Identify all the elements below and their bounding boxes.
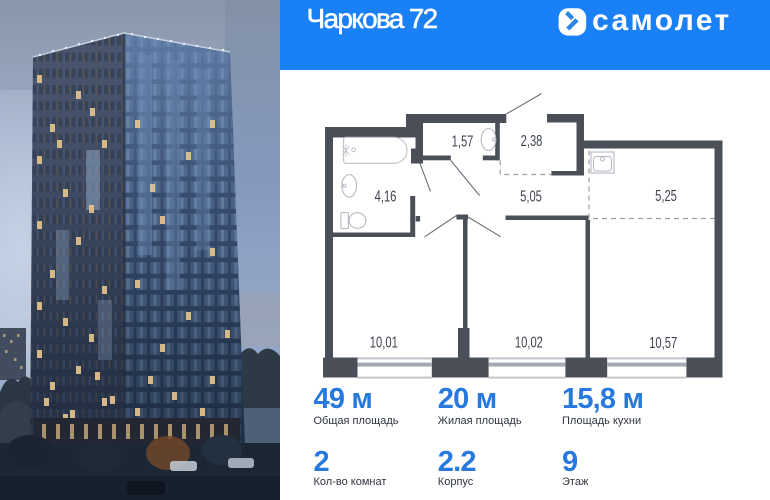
svg-text:2,38: 2,38: [521, 131, 543, 150]
svg-text:5,05: 5,05: [520, 186, 542, 205]
svg-text:10,02: 10,02: [515, 332, 543, 351]
svg-text:10,01: 10,01: [370, 332, 398, 351]
svg-text:4,16: 4,16: [375, 186, 397, 205]
svg-text:5,25: 5,25: [655, 186, 677, 205]
svg-text:1,57: 1,57: [452, 131, 474, 150]
svg-text:10,57: 10,57: [649, 333, 677, 352]
